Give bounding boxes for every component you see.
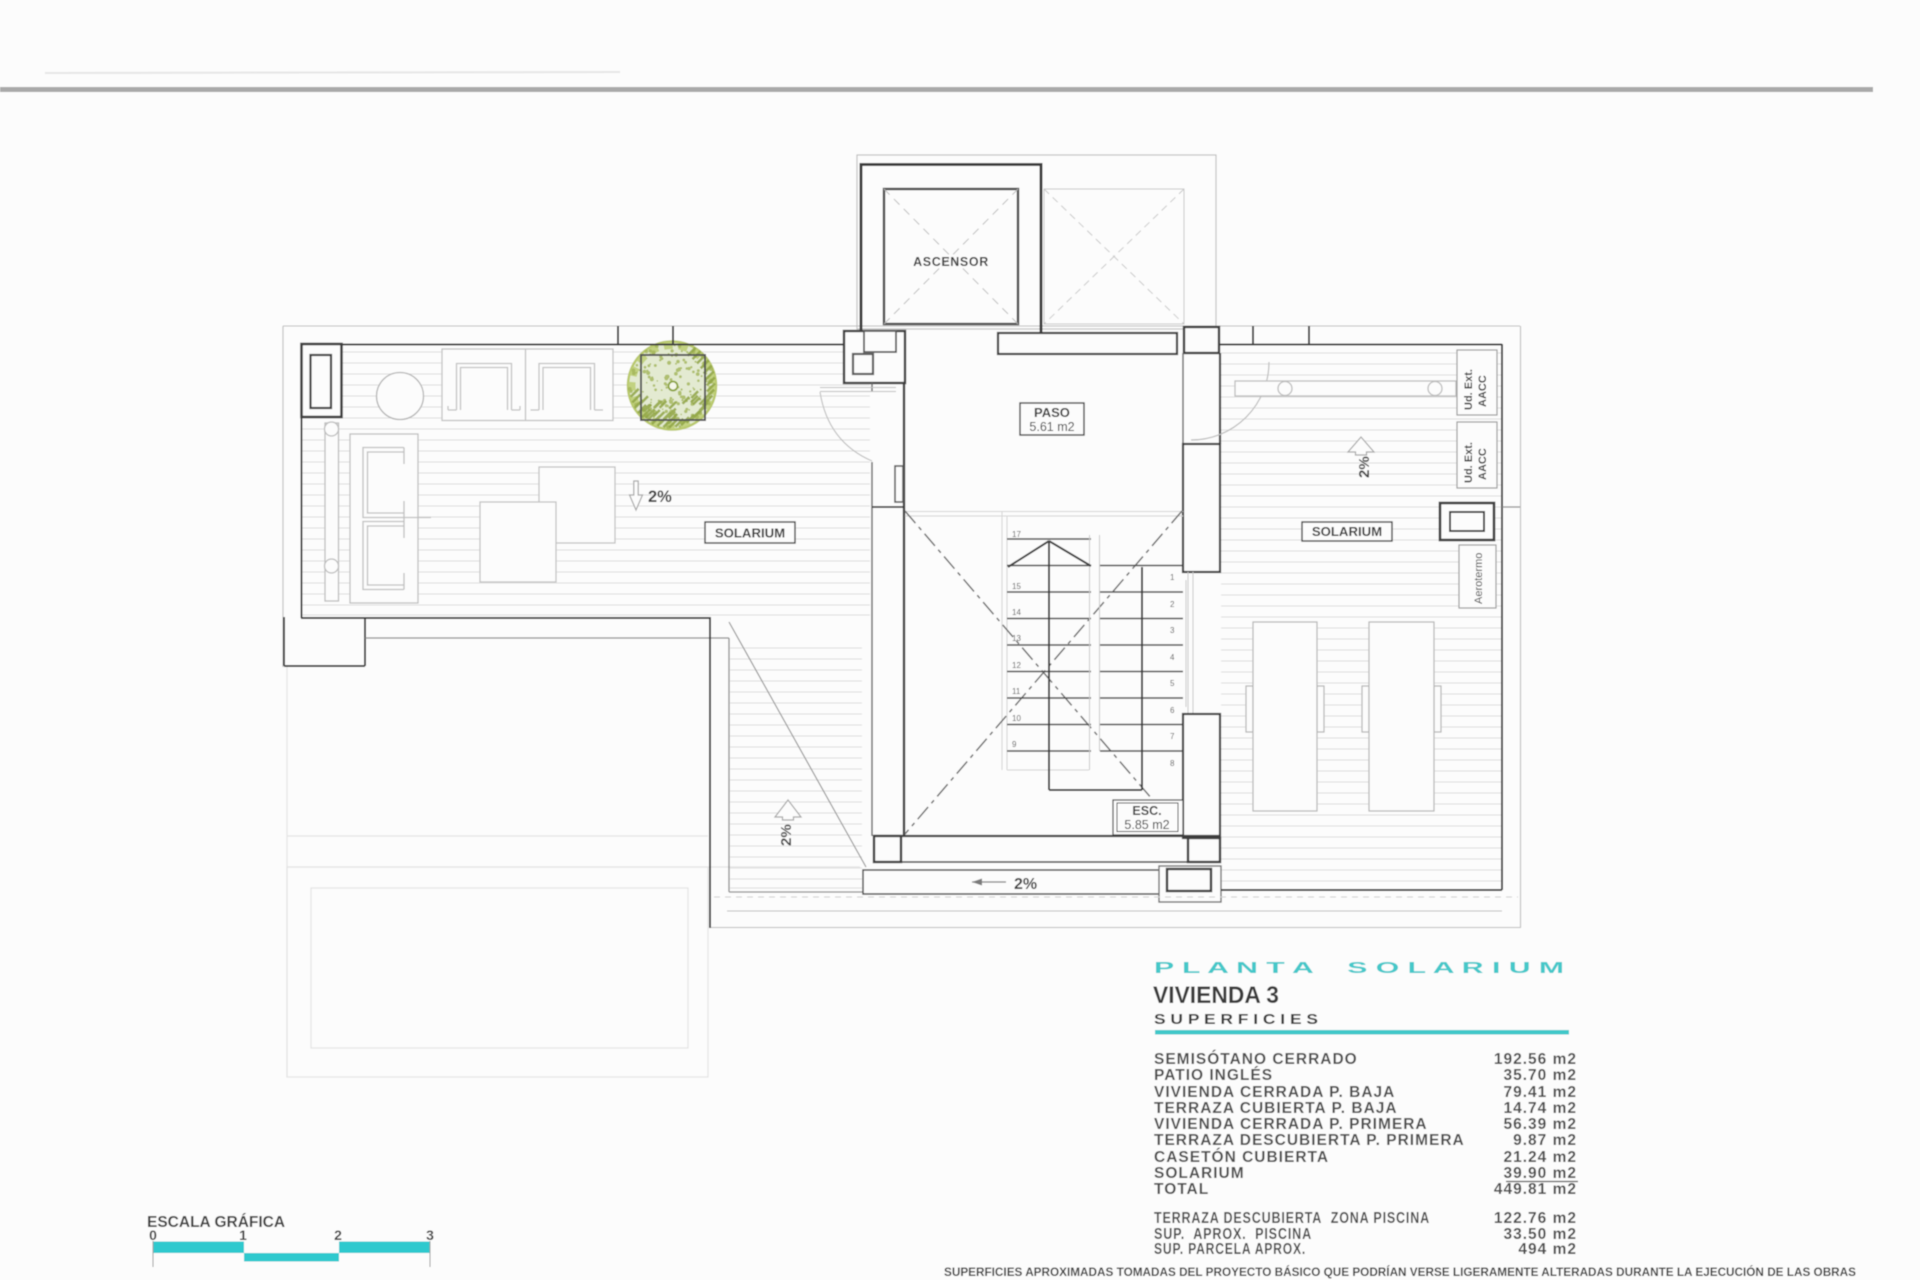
svg-text:SUP. PARCELA APROX.: SUP. PARCELA APROX. <box>1154 1241 1306 1258</box>
svg-text:SEMISÓTANO CERRADO: SEMISÓTANO CERRADO <box>1154 1050 1358 1068</box>
svg-text:8: 8 <box>1170 759 1175 768</box>
svg-text:TERRAZA DESCUBIERTA ZONA PISC: TERRAZA DESCUBIERTA ZONA PISCINA <box>1154 1210 1430 1227</box>
svg-text:122.76 m2: 122.76 m2 <box>1494 1210 1577 1227</box>
svg-text:SUPERFICIES APROXIMADAS TOMADA: SUPERFICIES APROXIMADAS TOMADAS DEL PROY… <box>944 1264 1856 1279</box>
svg-text:2%: 2% <box>778 824 795 846</box>
svg-text:TERRAZA DESCUBIERTA P. PRIMERA: TERRAZA DESCUBIERTA P. PRIMERA <box>1154 1132 1465 1149</box>
svg-text:CASETÓN CUBIERTA: CASETÓN CUBIERTA <box>1154 1148 1329 1166</box>
svg-text:Ud. Ext.: Ud. Ext. <box>1463 442 1475 483</box>
svg-text:7: 7 <box>1170 732 1175 741</box>
svg-text:2: 2 <box>1170 600 1175 609</box>
svg-text:ASCENSOR: ASCENSOR <box>913 255 989 269</box>
svg-text:13: 13 <box>1012 634 1021 643</box>
svg-text:6: 6 <box>1170 706 1175 715</box>
svg-text:VIVIENDA CERRADA P. PRIMERA: VIVIENDA CERRADA P. PRIMERA <box>1154 1116 1428 1133</box>
svg-text:1: 1 <box>1170 573 1175 582</box>
svg-text:9.87 m2: 9.87 m2 <box>1513 1132 1577 1149</box>
svg-text:S U P E R F I C I E S: S U P E R F I C I E S <box>1154 1011 1318 1028</box>
svg-text:Aerotermo: Aerotermo <box>1473 553 1485 604</box>
svg-text:PASO: PASO <box>1034 405 1070 420</box>
svg-text:39.90 m2: 39.90 m2 <box>1504 1165 1578 1182</box>
svg-text:TOTAL: TOTAL <box>1154 1181 1209 1198</box>
svg-text:2%: 2% <box>1014 876 1037 893</box>
svg-text:56.39 m2: 56.39 m2 <box>1504 1116 1578 1133</box>
svg-text:0: 0 <box>149 1227 157 1243</box>
svg-text:14: 14 <box>1012 608 1021 617</box>
svg-text:9: 9 <box>1012 740 1017 749</box>
svg-text:192.56 m2: 192.56 m2 <box>1494 1051 1577 1068</box>
svg-text:17: 17 <box>1012 530 1021 539</box>
svg-text:12: 12 <box>1012 661 1021 670</box>
svg-text:11: 11 <box>1012 687 1021 696</box>
svg-text:SOLARIUM: SOLARIUM <box>715 526 785 541</box>
svg-text:10: 10 <box>1012 714 1021 723</box>
svg-text:1: 1 <box>239 1227 247 1243</box>
svg-text:ESCALA GRÁFICA: ESCALA GRÁFICA <box>147 1214 285 1231</box>
svg-text:15: 15 <box>1012 582 1021 591</box>
svg-text:2%: 2% <box>648 488 672 506</box>
svg-text:494 m2: 494 m2 <box>1518 1241 1577 1258</box>
svg-text:SOLARIUM: SOLARIUM <box>1154 1165 1245 1182</box>
svg-text:79.41 m2: 79.41 m2 <box>1504 1084 1578 1101</box>
svg-text:5.61 m2: 5.61 m2 <box>1029 420 1074 434</box>
svg-text:21.24 m2: 21.24 m2 <box>1504 1149 1578 1166</box>
svg-text:SOLARIUM: SOLARIUM <box>1312 524 1382 539</box>
svg-text:449.81 m2: 449.81 m2 <box>1494 1181 1577 1198</box>
svg-text:5: 5 <box>1170 679 1175 688</box>
svg-text:PATIO INGLÉS: PATIO INGLÉS <box>1154 1067 1273 1084</box>
svg-text:AACC: AACC <box>1477 448 1489 480</box>
svg-text:35.70 m2: 35.70 m2 <box>1504 1067 1578 1084</box>
svg-text:VIVIENDA CERRADA P. BAJA: VIVIENDA CERRADA P. BAJA <box>1154 1084 1395 1101</box>
svg-text:AACC: AACC <box>1477 375 1489 407</box>
svg-text:VIVIENDA 3: VIVIENDA 3 <box>1153 982 1279 1009</box>
svg-text:3: 3 <box>1170 626 1175 635</box>
svg-text:ESC.: ESC. <box>1132 804 1161 818</box>
svg-text:P L A N T A S O L A R I U M: P L A N T A S O L A R I U M <box>1154 960 1564 977</box>
svg-text:5.85 m2: 5.85 m2 <box>1124 818 1169 832</box>
svg-text:2: 2 <box>334 1227 342 1243</box>
svg-text:TERRAZA CUBIERTA P. BAJA: TERRAZA CUBIERTA P. BAJA <box>1154 1100 1398 1117</box>
svg-text:3: 3 <box>426 1227 434 1243</box>
svg-text:4: 4 <box>1170 653 1175 662</box>
svg-text:Ud. Ext.: Ud. Ext. <box>1463 369 1475 410</box>
svg-text:14.74 m2: 14.74 m2 <box>1504 1100 1578 1117</box>
svg-text:2%: 2% <box>1356 456 1373 478</box>
